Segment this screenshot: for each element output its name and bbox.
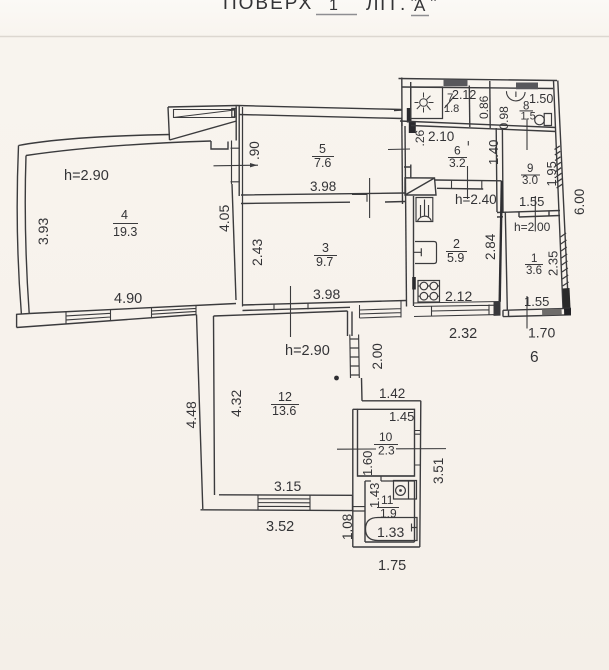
svg-text:h=2.90: h=2.90 xyxy=(285,343,330,359)
svg-text:2: 2 xyxy=(453,237,460,251)
svg-text:2.32: 2.32 xyxy=(449,326,477,342)
svg-text:4.48: 4.48 xyxy=(183,401,199,428)
svg-text:ПОВЕРХ: ПОВЕРХ xyxy=(223,0,313,14)
svg-text:1: 1 xyxy=(329,0,338,14)
svg-text:h=2: h=2 xyxy=(514,220,535,234)
svg-text:0.98: 0.98 xyxy=(497,106,511,130)
svg-text:2.10: 2.10 xyxy=(428,129,454,144)
svg-text:3: 3 xyxy=(322,241,329,255)
svg-text:.26: .26 xyxy=(413,129,427,146)
svg-text:2.12: 2.12 xyxy=(445,288,472,304)
svg-text:1.42: 1.42 xyxy=(379,386,405,401)
svg-text:6: 6 xyxy=(530,349,539,366)
svg-text:5.9: 5.9 xyxy=(447,251,464,265)
svg-text:4.05: 4.05 xyxy=(216,205,232,232)
svg-text:h=2.40: h=2.40 xyxy=(455,192,497,207)
svg-text:1.33: 1.33 xyxy=(377,524,404,540)
svg-text:7.6: 7.6 xyxy=(314,156,331,170)
svg-text:1.60: 1.60 xyxy=(360,451,375,476)
svg-text:1.55: 1.55 xyxy=(524,294,549,309)
svg-text:1.40: 1.40 xyxy=(486,140,501,165)
svg-text:2.35: 2.35 xyxy=(546,251,561,276)
svg-text:2.00: 2.00 xyxy=(370,343,385,369)
svg-text:12: 12 xyxy=(278,390,292,404)
svg-text:11: 11 xyxy=(381,493,394,507)
svg-text:9: 9 xyxy=(527,163,533,175)
svg-text:1.75: 1.75 xyxy=(378,558,406,574)
svg-text:3.0: 3.0 xyxy=(522,175,538,187)
svg-text:1.95: 1.95 xyxy=(544,161,559,186)
svg-text:3.52: 3.52 xyxy=(266,519,294,535)
svg-text:3.98: 3.98 xyxy=(313,286,340,302)
svg-text:9.7: 9.7 xyxy=(316,255,333,269)
svg-text:1.08: 1.08 xyxy=(340,514,355,540)
svg-text:6.00: 6.00 xyxy=(572,189,587,215)
svg-text:1.70: 1.70 xyxy=(528,325,555,341)
svg-text:1.45: 1.45 xyxy=(389,409,414,424)
svg-text:1.43: 1.43 xyxy=(367,483,382,508)
svg-text:4: 4 xyxy=(121,208,128,222)
svg-text:.90: .90 xyxy=(247,141,262,160)
svg-text:2.3: 2.3 xyxy=(378,444,395,458)
svg-text:3.51: 3.51 xyxy=(431,458,446,484)
svg-text:2.43: 2.43 xyxy=(249,239,265,266)
svg-text:2.12: 2.12 xyxy=(452,88,476,102)
svg-text:19.3: 19.3 xyxy=(113,225,137,239)
svg-text:4.32: 4.32 xyxy=(228,390,244,417)
svg-text:3.15: 3.15 xyxy=(274,478,301,494)
svg-text:1.5: 1.5 xyxy=(521,111,536,123)
svg-text:5: 5 xyxy=(319,142,326,156)
svg-text:h=2.90: h=2.90 xyxy=(64,168,109,184)
svg-text:1.50: 1.50 xyxy=(529,92,553,106)
svg-text:1.55: 1.55 xyxy=(519,194,544,209)
svg-text:1.9: 1.9 xyxy=(380,507,397,521)
svg-text:10: 10 xyxy=(379,430,393,444)
svg-text:А: А xyxy=(414,0,426,15)
svg-text:1.8: 1.8 xyxy=(444,103,459,115)
svg-text:13.6: 13.6 xyxy=(272,404,296,418)
svg-text:1: 1 xyxy=(531,253,537,265)
svg-text:3.93: 3.93 xyxy=(35,218,51,245)
svg-text:4.90: 4.90 xyxy=(114,291,142,307)
svg-text:3.6: 3.6 xyxy=(526,265,542,277)
svg-text:": " xyxy=(430,0,437,15)
svg-text:3.98: 3.98 xyxy=(310,179,336,194)
svg-text:ЛІТ: ЛІТ xyxy=(366,0,400,15)
svg-text:3.2: 3.2 xyxy=(449,156,466,170)
svg-text:2.84: 2.84 xyxy=(483,233,498,260)
svg-text:00: 00 xyxy=(537,220,551,234)
svg-text:0.86: 0.86 xyxy=(477,95,491,119)
